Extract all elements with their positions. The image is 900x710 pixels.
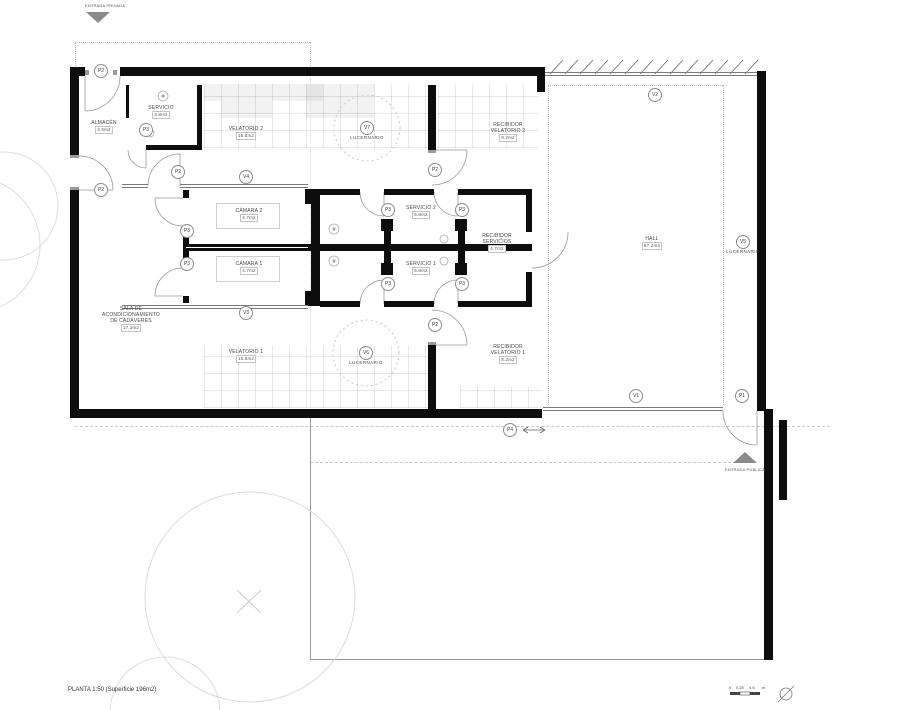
room-area: 3.8m2 [152,111,170,119]
wall-core-right-b [526,272,532,307]
marker-p2-sala: P2 [94,183,108,197]
marker-p3-camara1: P3 [180,257,194,271]
window-v1-glazing [543,407,723,411]
jamb-sala-door-a [70,155,79,158]
wall-camara-left-a [183,190,189,198]
marker-p2-velatorio2: P2 [171,165,185,179]
room-label-recibidor-v1: RECIBIDOR VELATORIO 1 8.2m2 [473,344,543,364]
lucernario-label-v5: LUCERNARIO [713,249,773,254]
room-area-wrap: 5.8m2 [386,267,456,275]
lucernario-label-v6: LUCERNARIO [336,360,396,365]
marker-v4-window: V4 [239,170,253,184]
wall-fin-top [428,85,436,150]
wall-patio-right [764,409,773,660]
column-central-top [305,189,320,204]
room-area: 5.8m2 [412,267,430,275]
room-area: 4.7m2 [488,245,506,253]
room-area-wrap: 17.2m2 [96,324,166,332]
wall-bottom [70,409,542,418]
room-area-wrap: 4.7m2 [214,267,284,275]
wall-left-upper [70,67,79,156]
room-label-velatorio2: VELATORIO 2 15.5m2 [211,126,281,140]
marker-p2-recibidor1: P2 [428,318,442,332]
marker-p2-entry: P2 [94,64,108,78]
room-area: 15.5m2 [236,355,256,363]
marker-p3-serv1a: P3 [381,277,395,291]
room-label-camara2: CÁMARA 2 4.7m2 [214,208,284,222]
room-label-almacen: ALMACÉN 3.5m2 [69,120,139,134]
room-area: 17.2m2 [121,324,141,332]
room-label-recibidor-servicios: RECIBIDOR SERVICIOS 4.7m2 [462,233,532,253]
marker-p3-camara2: P3 [180,224,194,238]
window-v4-glazing-b [180,184,308,188]
wall-camara-left-c [183,296,189,303]
jamb-private-entry-a [85,70,89,75]
marker-p2-recibidor2: P2 [428,163,442,177]
wall-central [311,196,320,296]
column-central-bottom [305,291,320,306]
room-area: 4.7m2 [240,267,258,275]
room-area-wrap: 3.8m2 [126,111,196,119]
wall-fin-bottom [428,345,436,410]
wall-core-bottom-b [384,301,434,307]
marker-v5-skylight: V5 [736,235,750,249]
room-area-wrap: 4.7m2 [214,214,284,222]
marker-p3-serv2a: P3 [381,203,395,217]
room-area-wrap: 8.2m2 [473,356,543,364]
room-area-wrap: 8.2m2 [473,134,543,142]
marker-v2-window: V2 [648,88,662,102]
marker-v6-skylight: V6 [359,346,373,360]
room-area: 5.8m2 [412,211,430,219]
public-entrance-arrow-icon [733,452,757,463]
scale-tick-025: 0.25 [736,685,744,690]
jamb-fin-top [428,150,436,153]
private-entrance-label: ENTRADA PRIVADA [65,3,145,8]
wall-core-top-a [320,189,360,195]
room-label-servicio-top: SERVICIO 3.8m2 [126,105,196,119]
floor-plan-canvas: ENTRADA PRIVADA ENTRADA PÚBLICA ALMACÉN … [0,0,900,710]
wall-core-mid-cavity [186,247,308,248]
marker-p3-servicio: P3 [139,123,153,137]
room-label-servicio2: SERVICIO 2 5.8m2 [386,205,456,219]
room-area-wrap: 3.5m2 [69,126,139,134]
room-area: 4.7m2 [240,214,258,222]
room-label-recibidor-v2: RECIBIDOR VELATORIO 2 8.2m2 [473,122,543,142]
window-v4-glazing-a [122,184,148,188]
marker-v3-window: V3 [239,306,253,320]
room-area-wrap: 15.5m2 [211,132,281,140]
marker-p1-public: P1 [735,389,749,403]
wall-servicio-bottom [146,145,202,150]
room-label-velatorio1: VELATORIO 1 15.5m2 [211,349,281,363]
marker-p4-sliding: P4 [503,423,517,437]
room-area-wrap: 4.7m2 [462,245,532,253]
wall-core-right-a [526,189,532,232]
jamb-private-entry-b [113,70,117,75]
lucernario-label-v7: LUCERNARIO [337,135,397,140]
marker-p3-serv1b: P3 [455,277,469,291]
jamb-fin-bottom [428,342,436,345]
public-entrance-label: ENTRADA PÚBLICA [705,467,785,472]
room-area: 15.5m2 [236,132,256,140]
room-area: 8.2m2 [499,356,517,364]
wall-core-bottom-a [320,301,360,307]
plan-title: PLANTA 1:50 (Superficie 196m2) [68,687,156,693]
private-entrance-arrow-icon [86,12,110,23]
wall-left-lower [70,190,79,418]
marker-p3-serv2b: P3 [455,203,469,217]
wall-core-bottom-c [458,301,532,307]
wall-hall-right [757,71,766,411]
wall-core-top-b [384,189,434,195]
room-area-wrap: 5.8m2 [386,211,456,219]
room-label-camara1: CÁMARA 1 4.7m2 [214,261,284,275]
room-area: 3.5m2 [95,126,113,134]
wall-core-top-c [458,189,532,195]
scale-tick-05: 0.5 [749,685,755,690]
marker-v7-skylight: V7 [360,121,374,135]
wall-top-main [120,67,545,76]
room-area: 57.2m2 [642,242,662,250]
room-label-servicio1: SERVICIO 1 5.8m2 [386,261,456,275]
scale-tick-0: 0 [729,685,731,690]
room-label-hall: HALL 57.2m2 [617,236,687,250]
column-cubicle-1a [381,219,393,231]
room-area-wrap: 57.2m2 [617,242,687,250]
wall-entry-stub [779,420,787,500]
room-area-wrap: 15.5m2 [211,355,281,363]
column-cubicle-2b [455,263,467,275]
jamb-sala-door-b [70,187,79,190]
room-area: 8.2m2 [499,134,517,142]
wall-hall-top-fin [537,76,545,92]
sliding-door-arrow [523,427,545,433]
window-v2-glazing [545,72,757,76]
room-label-sala: SALA DE ACONDICIONAMIENTO DE CADÁVERES 1… [96,306,166,332]
wall-servicio-right [197,85,202,150]
column-cubicle-2a [455,219,467,231]
marker-v1-window: V1 [629,389,643,403]
tree-landscape-circles [0,152,355,710]
scale-unit: m [762,685,765,690]
